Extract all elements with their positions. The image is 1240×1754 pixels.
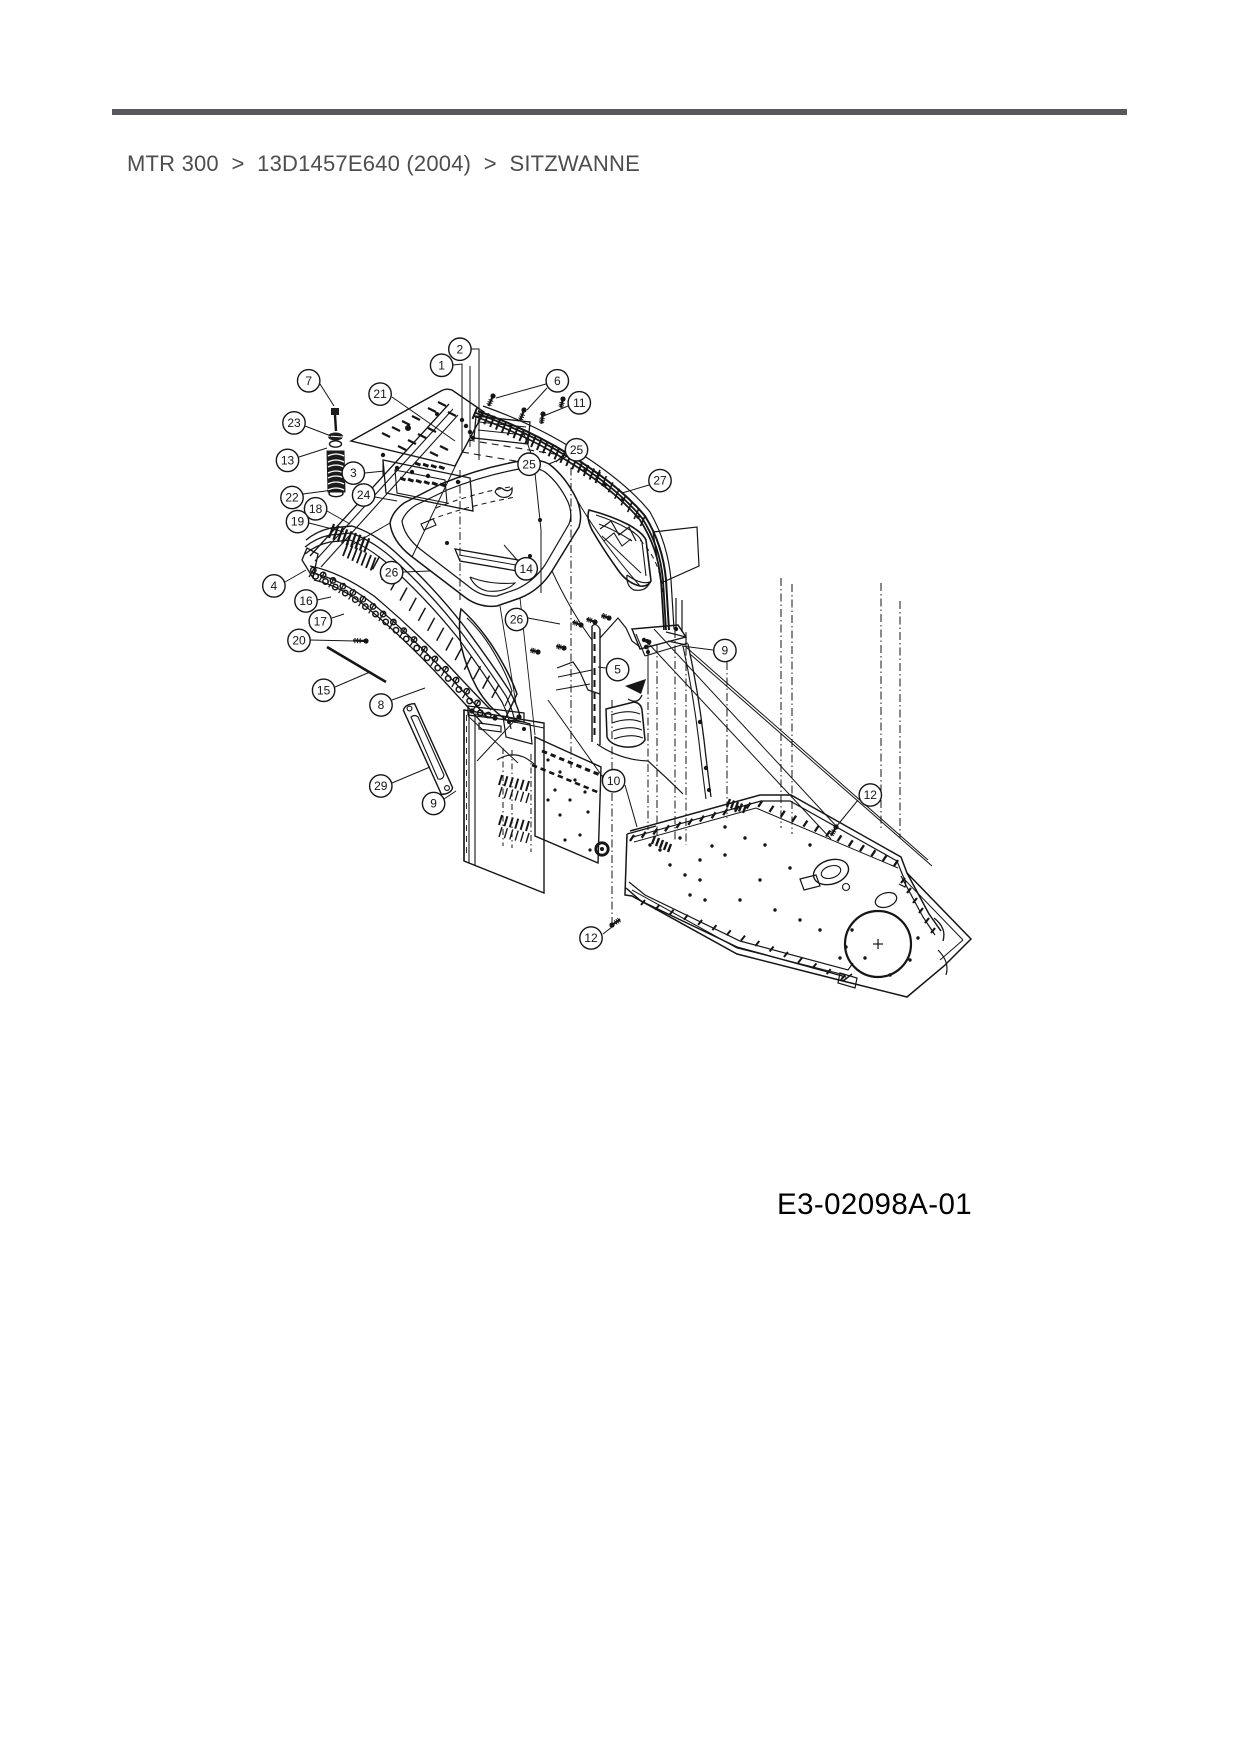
svg-text:29: 29 [374, 779, 388, 793]
svg-text:22: 22 [285, 491, 299, 505]
svg-text:12: 12 [864, 788, 878, 802]
svg-text:3: 3 [350, 466, 357, 480]
svg-text:8: 8 [378, 698, 385, 712]
svg-text:11: 11 [573, 396, 586, 410]
svg-text:1: 1 [438, 358, 445, 372]
svg-text:9: 9 [430, 797, 437, 811]
svg-text:25: 25 [522, 457, 536, 471]
svg-text:5: 5 [614, 663, 621, 677]
svg-text:6: 6 [554, 374, 561, 388]
svg-text:19: 19 [291, 515, 305, 529]
svg-text:25: 25 [570, 443, 584, 457]
svg-text:20: 20 [292, 634, 306, 648]
svg-text:17: 17 [314, 614, 328, 628]
svg-text:18: 18 [309, 502, 323, 516]
svg-text:21: 21 [373, 387, 387, 401]
svg-text:14: 14 [520, 562, 534, 576]
svg-text:23: 23 [287, 416, 301, 430]
svg-text:24: 24 [357, 488, 371, 502]
svg-text:26: 26 [385, 566, 399, 580]
svg-text:15: 15 [317, 683, 331, 697]
svg-text:4: 4 [271, 579, 278, 593]
svg-text:27: 27 [653, 474, 667, 488]
svg-text:2: 2 [457, 342, 464, 356]
svg-text:7: 7 [305, 374, 312, 388]
svg-text:10: 10 [607, 774, 621, 788]
svg-text:12: 12 [584, 931, 598, 945]
svg-text:13: 13 [281, 454, 295, 468]
svg-text:9: 9 [722, 644, 729, 658]
svg-text:16: 16 [299, 594, 313, 608]
svg-text:26: 26 [510, 613, 524, 627]
